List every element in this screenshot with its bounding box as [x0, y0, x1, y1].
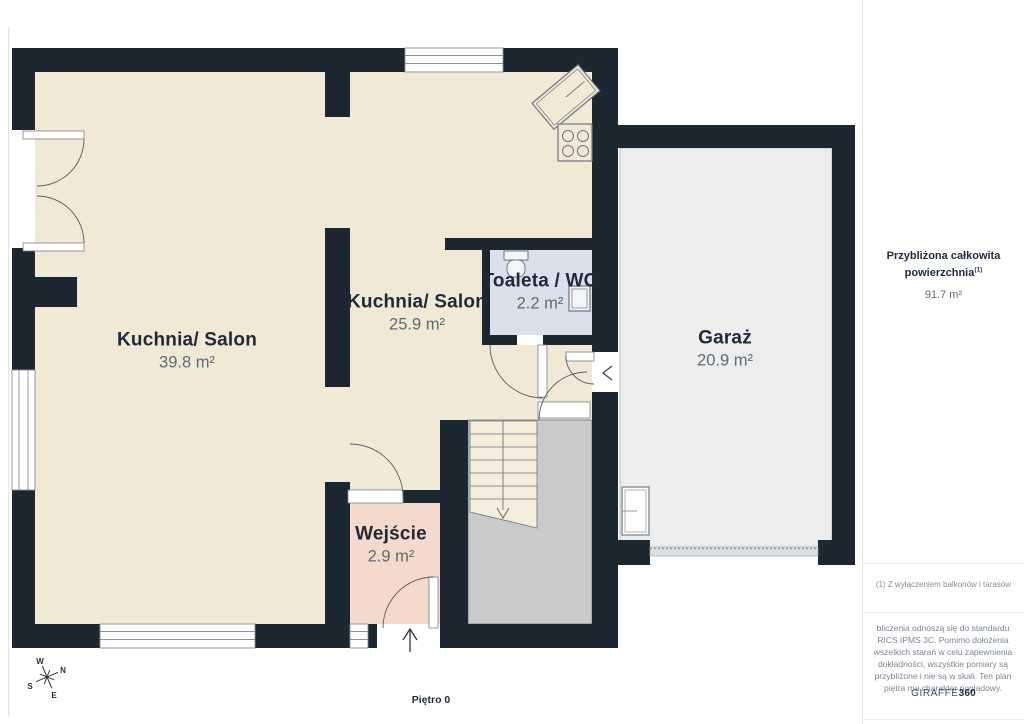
stove-icon [558, 124, 592, 161]
disclaimer-text: bliczenia odnoszą się do standardu RICS … [868, 622, 1018, 694]
card-edge-line [8, 27, 10, 716]
total-area-block: Przybliżona całkowita powierzchnia(1) 91… [863, 248, 1024, 301]
window-top [405, 48, 503, 72]
room-area: 39.8 m² [117, 354, 257, 373]
total-area-value: 91.7 m² [863, 289, 1024, 301]
room-area: 2.2 m² [483, 295, 598, 314]
total-area-footnote-marker: (1) [974, 266, 982, 273]
entrance-wall-left [325, 482, 350, 624]
room-name: Garaż [697, 328, 753, 350]
giraffe360-logo: GIRAFFE360 [863, 688, 1024, 699]
room-name: Toaleta / WC [483, 271, 598, 293]
garage-wall-bottom-right [818, 540, 855, 565]
room-label-salon-small: Kuchnia/ Salon 25.9 m² [347, 292, 487, 335]
room-label-entrance: Wejście 2.9 m² [355, 524, 427, 567]
room-label-salon-large: Kuchnia/ Salon 39.8 m² [117, 330, 257, 373]
compass-north-label: N [60, 666, 66, 675]
garage-wall-right [832, 125, 855, 565]
window-bottom [100, 624, 255, 648]
logo-suffix: 360 [959, 688, 976, 699]
garage-wall-top [613, 125, 855, 148]
room-label-toilet: Toaleta / WC 2.2 m² [483, 271, 598, 314]
garage-wall-box [622, 487, 649, 535]
floorplan-page: W N S E Kuchnia/ Salon 39.8 m² Kuchnia/ … [0, 0, 1024, 724]
floor-label: Piętro 0 [0, 694, 862, 706]
wall-top [12, 48, 613, 72]
sidebar-divider [863, 719, 1024, 720]
double-door-opening [12, 130, 35, 248]
room-area: 20.9 m² [697, 352, 753, 371]
staircase-wall-left [440, 420, 468, 624]
staircase-icon [470, 421, 537, 528]
toilet-wall-top [445, 238, 592, 250]
wall-stub-left [35, 277, 77, 307]
compass-south-label: S [27, 682, 33, 691]
entrance-wall-stub [403, 490, 440, 503]
compass-rose-icon [36, 666, 58, 688]
room-area: 25.9 m² [347, 316, 487, 335]
total-area-title-text: Przybliżona całkowita powierzchnia [887, 250, 1001, 279]
compass-west-label: W [36, 657, 44, 666]
logo-text: GIRAFFE [911, 688, 959, 699]
room-name: Wejście [355, 524, 427, 546]
toilet-door-opening [517, 335, 543, 345]
room-label-garage: Garaż 20.9 m² [697, 328, 753, 371]
room-name: Kuchnia/ Salon [347, 292, 487, 314]
footnote-text: (1) Z wyłączeniem balkonów i tarasów [863, 580, 1024, 589]
sidebar: Przybliżona całkowita powierzchnia(1) 91… [862, 0, 1024, 724]
room-name: Kuchnia/ Salon [117, 330, 257, 352]
total-area-title: Przybliżona całkowita powierzchnia(1) [873, 248, 1015, 282]
room-area: 2.9 m² [355, 548, 427, 567]
window-left [12, 370, 35, 490]
sidebar-divider [863, 563, 1024, 564]
garage-wall-bottom-left [592, 540, 650, 565]
window-sidelight [350, 624, 368, 648]
sidebar-divider [863, 612, 1024, 613]
wall-stub-top [325, 72, 350, 117]
